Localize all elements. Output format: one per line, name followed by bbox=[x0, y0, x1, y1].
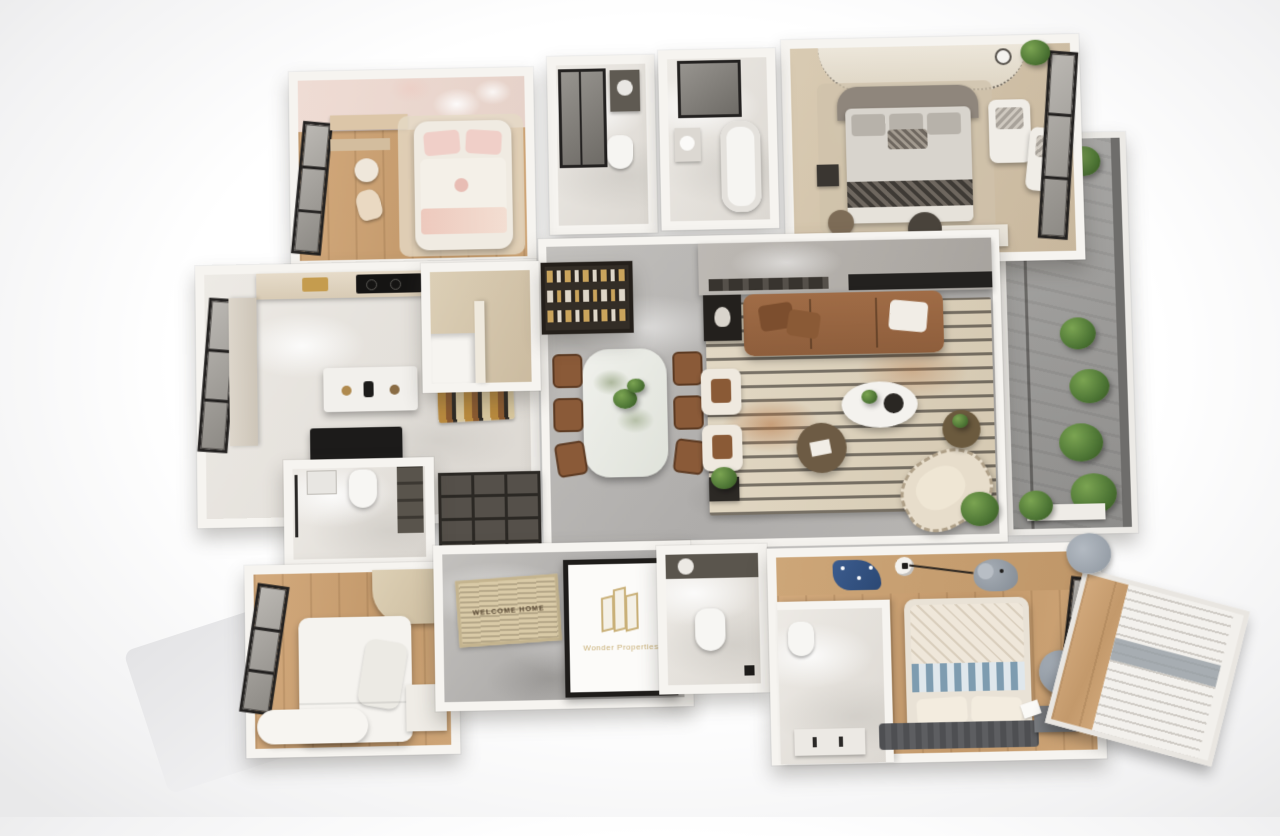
armchair-pillow bbox=[711, 379, 732, 403]
media-console bbox=[848, 271, 992, 290]
nightstand bbox=[817, 164, 839, 186]
elephant-eye bbox=[1000, 569, 1004, 573]
pillow bbox=[927, 112, 961, 134]
bathroom-shelf-unit bbox=[397, 466, 424, 533]
faucet bbox=[813, 737, 817, 747]
window-seat bbox=[988, 99, 1032, 163]
table-decor-dark bbox=[883, 393, 904, 413]
pantry-closet bbox=[421, 261, 541, 393]
star-dot bbox=[869, 566, 873, 570]
balcony-plant bbox=[1059, 317, 1096, 350]
toilet bbox=[349, 469, 378, 508]
elephant-ear bbox=[977, 563, 994, 579]
master-window bbox=[1038, 50, 1079, 240]
bathroom-vanity bbox=[610, 70, 641, 112]
toilet bbox=[788, 621, 815, 656]
balcony-plant bbox=[1069, 369, 1110, 404]
media-shelf bbox=[709, 277, 829, 291]
pantry-inner-wall bbox=[474, 301, 485, 383]
balcony-railing bbox=[1111, 138, 1132, 527]
side-table-bust bbox=[703, 295, 742, 342]
entry-hall: WELCOME HOME Wonder Properties bbox=[433, 540, 694, 711]
cabinet-shelf bbox=[547, 289, 627, 303]
armchair bbox=[701, 368, 742, 415]
pillow bbox=[423, 129, 461, 156]
book bbox=[809, 439, 831, 457]
bathroom-vanity bbox=[794, 728, 865, 756]
sink-basin bbox=[678, 558, 694, 574]
cabinet-shelf bbox=[547, 309, 627, 323]
shower-glass-divider bbox=[579, 72, 583, 165]
bathroom-guest bbox=[283, 457, 435, 569]
sofa-pillow-brown bbox=[786, 309, 822, 340]
accent-pillow bbox=[887, 129, 927, 150]
dining-table bbox=[582, 348, 669, 478]
bust-sculpture bbox=[714, 307, 730, 327]
guest-window bbox=[239, 583, 290, 716]
shower-enclosure bbox=[677, 60, 742, 119]
pillow bbox=[465, 129, 502, 154]
soccer-patch bbox=[902, 563, 908, 569]
kids-bedroom-pink bbox=[289, 67, 537, 270]
pillow bbox=[851, 114, 885, 136]
master-plant bbox=[1020, 39, 1051, 65]
powder-room bbox=[656, 544, 770, 695]
kids-rug-dark bbox=[879, 720, 1039, 750]
bedroom-guest bbox=[244, 561, 460, 758]
seat-pillow bbox=[995, 107, 1023, 129]
desk-chair bbox=[354, 158, 378, 182]
pink-blanket bbox=[421, 207, 507, 235]
dining-chair bbox=[552, 354, 583, 389]
decor-wall bbox=[776, 551, 1093, 596]
cooktop bbox=[356, 273, 422, 293]
kitchen-side-counter bbox=[228, 298, 258, 447]
doormat: WELCOME HOME bbox=[455, 574, 562, 648]
tv-wall bbox=[698, 238, 993, 296]
kids-blue-bed bbox=[904, 597, 1033, 738]
dining-chair bbox=[553, 398, 584, 433]
kitchen-island bbox=[323, 366, 418, 412]
blue-striped-blanket bbox=[912, 662, 1026, 693]
dining-chair bbox=[673, 395, 704, 430]
floor-drain bbox=[744, 665, 754, 675]
glass-partition bbox=[295, 475, 299, 537]
rocking-chair bbox=[354, 187, 385, 222]
star-dot bbox=[841, 566, 845, 570]
gold-tray bbox=[302, 277, 328, 291]
kids-shelf bbox=[330, 138, 390, 151]
sofa bbox=[743, 290, 944, 356]
burner bbox=[390, 279, 401, 290]
blinds-gray-band bbox=[1110, 638, 1221, 688]
garland-line bbox=[909, 564, 973, 574]
dining-chair bbox=[554, 440, 589, 479]
building-icon bbox=[599, 586, 640, 631]
shower-enclosure bbox=[558, 68, 608, 168]
sink-counter bbox=[307, 470, 337, 495]
door-logo-text: Wonder Properties bbox=[569, 638, 672, 653]
powder-vanity bbox=[665, 553, 758, 579]
bathroom-bathtub bbox=[658, 48, 779, 230]
table-decor-plant bbox=[861, 390, 877, 404]
cabinet-shelf bbox=[547, 269, 627, 283]
burner bbox=[366, 279, 377, 290]
curved-bench bbox=[257, 708, 368, 745]
island-bowl bbox=[390, 385, 400, 395]
sink-basin bbox=[680, 136, 695, 151]
sofa-pillow-white bbox=[888, 299, 928, 332]
kids-desk bbox=[330, 114, 408, 130]
sink-basin bbox=[617, 80, 633, 96]
bathroom-vanity bbox=[674, 128, 701, 162]
toilet bbox=[695, 608, 726, 651]
island-vase bbox=[363, 381, 373, 397]
pantry-opening bbox=[431, 333, 476, 384]
faucet bbox=[839, 737, 843, 747]
table-centerpiece bbox=[627, 378, 645, 392]
blue-wall-art bbox=[832, 559, 881, 590]
kids-bedroom-blue bbox=[767, 542, 1107, 766]
plush-elephant bbox=[973, 559, 1018, 592]
bathtub bbox=[720, 120, 762, 212]
dining-chair bbox=[672, 351, 703, 386]
armchair bbox=[702, 424, 743, 471]
side-table-plant bbox=[952, 414, 968, 428]
kids-pink-window bbox=[291, 121, 333, 256]
balcony-plant bbox=[1059, 423, 1104, 462]
island-bowl bbox=[341, 386, 351, 396]
kids-pink-bed bbox=[414, 120, 514, 251]
doormat-text: WELCOME HOME bbox=[458, 577, 559, 645]
bathroom-shower bbox=[547, 55, 658, 235]
corner-plant bbox=[960, 491, 999, 526]
quilt-top bbox=[910, 603, 1024, 664]
bed-runner bbox=[847, 179, 973, 207]
sofa-cushion-seam bbox=[875, 298, 878, 348]
apartment-floorplan: WELCOME HOME Wonder Properties bbox=[0, 0, 1280, 836]
toilet bbox=[607, 135, 634, 169]
star-dot bbox=[857, 576, 861, 580]
master-bed bbox=[843, 84, 976, 225]
kids-ensuite-bathroom bbox=[777, 600, 894, 765]
pillow bbox=[356, 638, 408, 711]
armchair-pillow bbox=[712, 435, 733, 460]
display-cabinet bbox=[541, 261, 634, 335]
